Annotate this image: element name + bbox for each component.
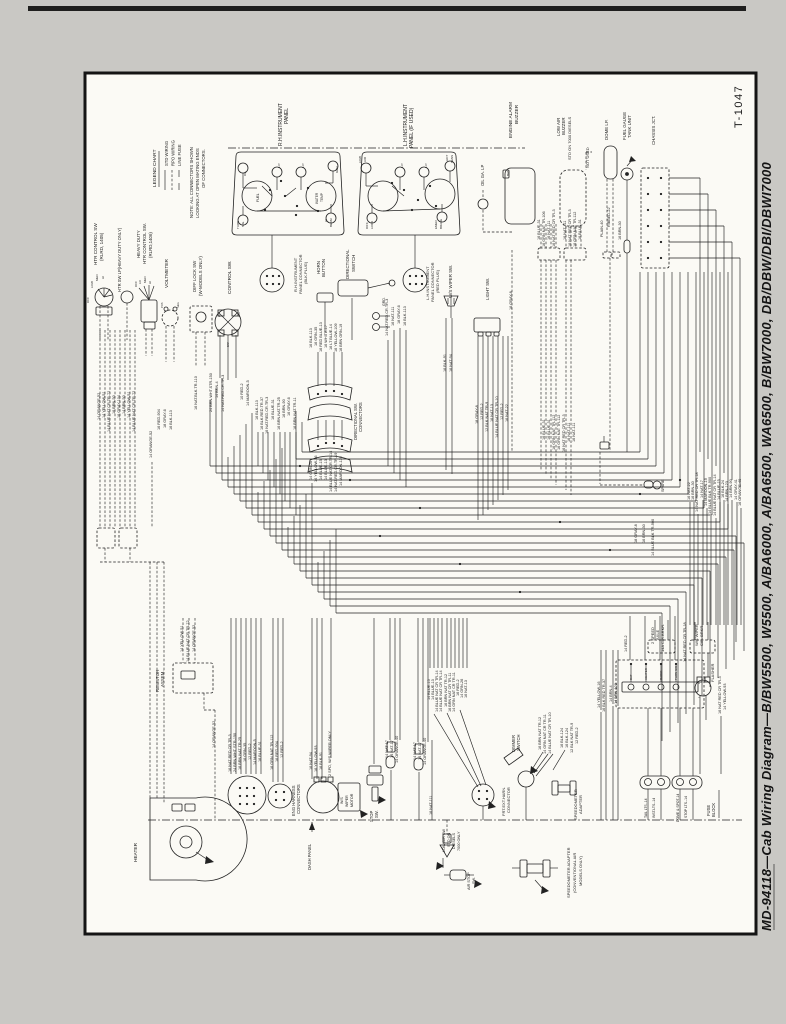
- wire-label: 16 NAT-111: [563, 221, 567, 240]
- component-label: DIESELS: [452, 832, 456, 849]
- component-label: EMER.: [434, 219, 438, 229]
- component-label: DASH PANEL: [307, 843, 312, 870]
- component-label: IGN: [237, 312, 241, 317]
- wire-label: 14 ORANGE-52: [212, 721, 216, 748]
- wire-label: 16 NAT-111: [567, 423, 571, 442]
- wire-label: 16 NAT-94: [309, 752, 313, 770]
- component-label: 2 SPD, W/S WIPER ONLY: [328, 731, 332, 776]
- wire-label: 16 GRN-35: [243, 743, 247, 762]
- wire-label: 16 GRN NAT TR-106: [542, 211, 546, 247]
- component-label: RADIO: [659, 670, 663, 680]
- component-label: 14A CIR.BRKR.: [660, 624, 665, 652]
- component-label: 7000 ONLY: [457, 831, 461, 851]
- wire-label: 16 BLK-113: [169, 410, 173, 430]
- component-label: L.P.: [400, 163, 404, 168]
- wire-label: 16 RED-904: [157, 409, 161, 430]
- component-label: SW.: [374, 810, 379, 818]
- wire-label: 16 NAT.RED.CR.TR-3: [265, 397, 269, 434]
- component-label: LOW AIR SW: [442, 829, 446, 852]
- component-label: TEMP: [320, 193, 324, 202]
- wire-label: RIBBED-22: [607, 207, 611, 227]
- wire-label: 16 GRN-35: [314, 327, 318, 346]
- wire-label: 16 BRN GRN-19: [339, 324, 343, 352]
- wire-label: 16 NAT-22: [505, 404, 509, 422]
- component-label: BAT: [226, 342, 230, 347]
- component-label: MODELS ONLY): [578, 855, 583, 886]
- wire-label: 16 NAT-111: [572, 423, 576, 442]
- wire-label: 16 BLK-113: [403, 306, 407, 326]
- wire-label: 24 BRN WHT STR-150: [233, 733, 237, 772]
- component-label: LOW: [358, 156, 362, 163]
- component-label: PANEL: [284, 108, 290, 124]
- wire-label: 16 GRAY-6: [287, 397, 291, 416]
- wire-label: 16 NAT RED CR TR-3: [568, 209, 572, 247]
- component-label: HOT: [445, 155, 449, 162]
- component-label: BRAKE: [439, 219, 443, 229]
- wire-label: 14 ORANGE-40: [423, 738, 427, 765]
- wire-label: 12 BLK NAT TR-9: [485, 402, 489, 432]
- component-label: DOME & SPOT-14: [676, 794, 680, 822]
- component-label: (RED PLUG): [435, 269, 440, 293]
- component-label: TANK UNIT: [627, 115, 632, 138]
- component-label: SIG.: [241, 221, 245, 227]
- component-label: (RLRD,1406): [148, 232, 153, 258]
- component-label: W/S WIPER SW.: [448, 265, 453, 298]
- component-label: BUZZER: [514, 104, 520, 124]
- component-label: L.P.: [424, 163, 428, 168]
- component-label: BEAM: [329, 218, 333, 227]
- wire-label: 14 NAT-17: [418, 742, 422, 760]
- wire-label: 14 RED-2: [624, 635, 628, 652]
- component-label: (W-MODELS ONLY): [198, 256, 203, 296]
- wire-label: 14 NAT-17: [413, 742, 417, 760]
- note-text: OF CONNECTORS.: [201, 149, 206, 188]
- wire-label: 14 GRN-26: [309, 461, 313, 480]
- component-label: CONTROL SW.: [227, 261, 233, 294]
- wire-label: 14 NAT.RED.CR.TR-19: [334, 453, 338, 492]
- wire-label: 16 BLUE-31: [258, 741, 262, 762]
- scanned-page: HTR CONTROL SW(RLRD, 1405)LOWMEDHIOFFHTR…: [0, 0, 786, 1024]
- legend-item-label: STD WIRING: [164, 141, 169, 166]
- drawing-title: MD-94118—Cab Wiring Diagram—B/BW5500, W5…: [759, 161, 774, 931]
- wire-label: 14 NAT RED CR TR-18: [683, 622, 687, 662]
- wire-label: 18 GRAY-8: [634, 524, 638, 543]
- wire-label: 14 NAT.RED.CR.TR-3: [385, 299, 389, 336]
- wire-label: 14 BLUE NAT CR TR-14: [439, 670, 443, 712]
- wire-label: 14 ORANGE-40: [395, 736, 399, 763]
- component-label: HTR CONTROL SW: [93, 223, 98, 265]
- note-text: NOTE: ALL CONNECTORS SHOWN: [189, 147, 194, 218]
- wire-label: 14 BLUE NAT CR TR-10: [495, 396, 499, 438]
- wire-label: 14 YELLOW-16: [314, 456, 318, 482]
- component-label: ASSEM.: [160, 670, 165, 687]
- component-label: CIR. BRKR.: [699, 625, 704, 646]
- wire-label: 16 NAT RED CR TR-3: [228, 734, 232, 772]
- wire-label: 16 BRN.NAT.TR-11: [293, 397, 297, 430]
- wire-label: 14 MAROON-5: [246, 380, 250, 406]
- wire-label: 14 BLUE NAT.CR.TR-72: [132, 391, 136, 432]
- wire-label: 24 BRN.WHT.STR-150: [209, 373, 213, 412]
- wire-label: 16 BLK-91: [319, 752, 323, 770]
- wire-label: 14 NAT.RED.CR.TR-3: [221, 375, 225, 412]
- component-label: CHASSIS JCT.: [651, 116, 656, 145]
- component-label: INST.LTS.-14: [652, 798, 656, 818]
- component-label: NEG: [176, 302, 180, 308]
- component-label: VOLTMETER: [164, 259, 170, 288]
- component-label: DIFF LOCK SW: [192, 260, 197, 292]
- wire-label: 16 NAT RED CR TR-3: [718, 676, 722, 714]
- wire-label: 14 YELLOW-16: [597, 682, 601, 708]
- wire-label: 16 BRN-90: [282, 399, 286, 418]
- component-label: (CONVENTIONAL AIR: [572, 853, 577, 893]
- component-label: OIL: [243, 171, 247, 176]
- wire-label: 16 BLK.RED.TR-37: [260, 397, 264, 430]
- wire-label: 16 NAT-111: [391, 307, 395, 326]
- component-label: PANEL (IF USED): [409, 107, 415, 148]
- wire-label: 16 BRN NAT TR-25: [238, 737, 242, 770]
- component-label: L.P.: [277, 163, 281, 168]
- component-label: DIFF.: [365, 222, 369, 229]
- component-label: BAT: [629, 674, 633, 680]
- wire-label: 14 BLUE NAT.CR.TR-72: [107, 391, 111, 432]
- wire-label: 16 YELLOW-109: [334, 323, 338, 352]
- component-label: ACC: [217, 311, 221, 317]
- wire-label: 12 RED-2: [280, 741, 284, 758]
- wire-label: 12 RED-2: [500, 403, 504, 420]
- component-label: HI: [101, 276, 105, 279]
- wire-label: 14 BRN-90: [729, 479, 733, 498]
- component-label: FLASHER: [710, 663, 715, 682]
- component-label: CONNECTOR: [506, 787, 511, 813]
- wire-label: 12 RED-2: [480, 403, 484, 420]
- wire-label: 16 NAT RED CR TR-3: [562, 414, 566, 452]
- component-label: HEATER: [133, 842, 139, 862]
- component-label: OFF: [86, 297, 90, 303]
- wire-label: 16 BLK-124: [565, 728, 569, 748]
- wire-label: 16 BRN.NAT.TR-25: [277, 397, 281, 430]
- wire-label: 14 ORANGE-52: [192, 625, 196, 652]
- wire-label: 16 LT BLUE-14: [329, 324, 333, 350]
- wire-label: 16 BLK-113: [309, 328, 313, 348]
- wire-label: 16 BLUE-31: [578, 219, 582, 240]
- wire-label: 14 ORANGE-52: [97, 393, 101, 420]
- wire-label: 16 NAT-94: [449, 354, 453, 372]
- wire-label: 16 GRN NAT TR-112: [573, 212, 577, 247]
- wire-label: 16 GRN NAT TR-112: [552, 415, 556, 450]
- wire-label: 12 BLK NAT TR-9: [570, 723, 574, 753]
- wire-label: 12 RED-2: [248, 743, 252, 760]
- wire-label: 16 GRAY-104: [117, 395, 121, 418]
- wire-label: 18 GRAY-6: [163, 409, 167, 428]
- wire-label: 16 NAT RED CR TR-3: [552, 209, 556, 247]
- component-label: NOT USED: [585, 147, 590, 168]
- sheet-number: T-1047: [733, 85, 745, 128]
- component-label: AIR: [363, 156, 367, 162]
- wire-label: 16 GRAY-8: [509, 291, 513, 310]
- component-label: DOME LP.: [604, 120, 609, 140]
- component-label: AIR STOP: [467, 872, 471, 890]
- component-label: STOP LTS.-14: [684, 796, 688, 818]
- note-text: LOOKING AT OPEN MATING ENDS: [195, 148, 200, 218]
- wire-label: 16 GRN NAT TR-112: [557, 415, 561, 450]
- wire-label: 16 BLUE-31: [542, 419, 546, 440]
- wire-label: 16 BLUE-31: [547, 419, 551, 440]
- component-label: GEN.: [335, 165, 339, 173]
- wire-label: 14 BLUE-15: [319, 459, 323, 480]
- scan-edge-artifact: [28, 6, 746, 11]
- wire-label: 16 RED BLUE-13: [319, 322, 323, 352]
- wire-label: 14 BLUE NAT.CR.TR-14: [329, 451, 333, 492]
- wire-label: 16 BRN-30: [642, 524, 646, 543]
- wire-label: PLAIN-40: [600, 221, 604, 237]
- component-label: BUTTON: [321, 259, 326, 277]
- component-label: P: [697, 682, 701, 684]
- wire-label: 16 ORANGE-40: [738, 479, 742, 506]
- component-label: SWITCH: [351, 255, 356, 272]
- wire-label: 14 BLUE-13: [324, 459, 328, 480]
- component-label: HI: [148, 281, 152, 284]
- wire-label: 16 NAT-111: [547, 221, 551, 240]
- wire-label: 16 BRN-30: [618, 221, 622, 240]
- wire-label: 16 YELLOW-93: [314, 746, 318, 772]
- component-label: TURN: [236, 221, 240, 229]
- wire-label: 16 BRN NAT TR-12: [538, 717, 542, 750]
- wire-label: 16 BRN-50: [112, 395, 116, 414]
- wire-label: 14 NAT RED CR TR-18: [695, 472, 699, 512]
- component-label: SPARE: [661, 479, 665, 492]
- component-label: SENS: [450, 155, 454, 163]
- wire-label: 14 MAROON-5: [253, 739, 257, 765]
- legend-item-label: RPO WIRING: [171, 140, 176, 166]
- wire-label: 14 YELLOW-51: [180, 626, 184, 652]
- wire-label: 14 MAROON-119: [339, 456, 343, 486]
- wire-label: 16 BLK-113: [255, 400, 259, 420]
- wire-label: 18 GRAY-6: [397, 305, 401, 324]
- component-label: POS: [160, 302, 164, 308]
- wire-label: 14 BLUE BLK TR-900: [651, 519, 655, 556]
- component-label: L.P.: [301, 163, 305, 168]
- wire-label: 16 BLK-91: [443, 354, 447, 372]
- wire-label: 14 BRN-4: [609, 685, 613, 702]
- component-label: LO: [138, 279, 142, 284]
- component-label: SWITCH: [516, 734, 521, 751]
- legend-item-label: LINE FUSE: [177, 144, 182, 166]
- component-label: STD ON: [447, 832, 451, 847]
- component-label: HI: [324, 219, 328, 222]
- wire-label: 16 BLUE-31: [271, 399, 275, 420]
- wire-label: 16 BLK RED TR-37: [602, 679, 606, 712]
- component-label: TAIL LTS.-14: [644, 798, 648, 818]
- wire-label: 14 ORANGE-52: [149, 431, 153, 458]
- wire-label: 14 BLUE NAT CR TR-10: [548, 712, 552, 754]
- wire-label: 12 RED-2: [575, 727, 579, 744]
- component-label: BUZZER: [561, 117, 566, 135]
- wire-label: 16 NAT-13: [490, 404, 494, 422]
- component-label: WIPER: [345, 795, 349, 807]
- wiring-diagram-sheet: HTR CONTROL SW(RLRD, 1405)LOWMEDHIOFFHTR…: [0, 0, 786, 1024]
- component-label: HTR CONTROL SW.: [142, 223, 147, 264]
- component-label: LOCK: [370, 221, 374, 229]
- component-label: BAT.: [506, 170, 510, 176]
- wire-label: 14 BLUE BLK TR-900: [708, 477, 712, 514]
- component-label: BLOCK: [711, 803, 716, 817]
- component-label: HTR SW LP(HEAVY DUTY ONLY): [117, 227, 122, 292]
- wire-label: 16 NAT.BLK.TR-110: [194, 376, 198, 410]
- component-label: LOW: [90, 281, 94, 288]
- wire-label: 14 BLUE NAT CR TR-72: [186, 620, 190, 662]
- component-label: TURN SIG: [674, 665, 678, 680]
- wire-label: 16 NAT-13: [464, 680, 468, 698]
- component-label: CONNECTORS: [358, 402, 363, 432]
- wire-label: 14 YELLOW-93: [723, 684, 727, 710]
- wire-label: 14 NAT-17: [390, 740, 394, 758]
- component-label: LIGHT SW.: [485, 278, 490, 300]
- wire-label: 14 BRN-4: [215, 381, 219, 398]
- wire-label: 16 BLUE-31: [537, 219, 541, 240]
- component-label: STD ON 7000 DIESELS: [567, 117, 572, 160]
- wire-label: 16 BLK-124: [560, 728, 564, 748]
- wire-label: 14 YELLOW-51: [102, 392, 106, 418]
- component-label: MED: [95, 274, 99, 282]
- component-label: ENGINE ALARM: [508, 102, 514, 138]
- wire-label: 14 GRN NAT CR TR-11: [543, 714, 547, 754]
- component-label: DIRECTIONAL: [345, 249, 350, 279]
- component-label: W/S: [340, 797, 344, 804]
- wire-label: 10 RED-2: [240, 383, 244, 400]
- component-label: MOTOR: [350, 793, 354, 807]
- component-label: OIL GA. LP: [480, 165, 485, 186]
- wire-label: 14 NAT-17: [385, 740, 389, 758]
- component-label: FUEL: [256, 193, 260, 202]
- component-label: HEATER: [644, 667, 648, 680]
- component-label: HEAVY DUTY: [136, 230, 141, 258]
- component-label: (BLK.PLUG): [303, 261, 308, 284]
- component-label: CONNECTORS: [296, 784, 301, 814]
- component-label: SPEEDOMETER ADAPTER: [566, 847, 571, 898]
- wire-label: 18 GRAY-8: [475, 405, 479, 424]
- wire-label: 14 BRN-50: [122, 395, 126, 414]
- wire-label: 14 YELLOW-51: [127, 392, 131, 418]
- wire-label: 16 GRN NAT TR-112: [270, 735, 274, 770]
- wire-label: 16 WHITE-17: [324, 325, 328, 348]
- wire-label: 14 BRN-123: [614, 683, 618, 704]
- wire-label: 16 NAT-111: [429, 796, 433, 815]
- wire-label: 16 RED-904: [275, 741, 279, 762]
- component-label: SW.: [472, 877, 476, 884]
- component-label: ADAPTER: [578, 795, 583, 814]
- component-label: MED: [143, 276, 147, 284]
- component-label: WATER: [315, 192, 319, 204]
- legend-title: LEGEND CHART: [152, 149, 158, 187]
- component-label: (RLRD, 1405): [99, 232, 104, 261]
